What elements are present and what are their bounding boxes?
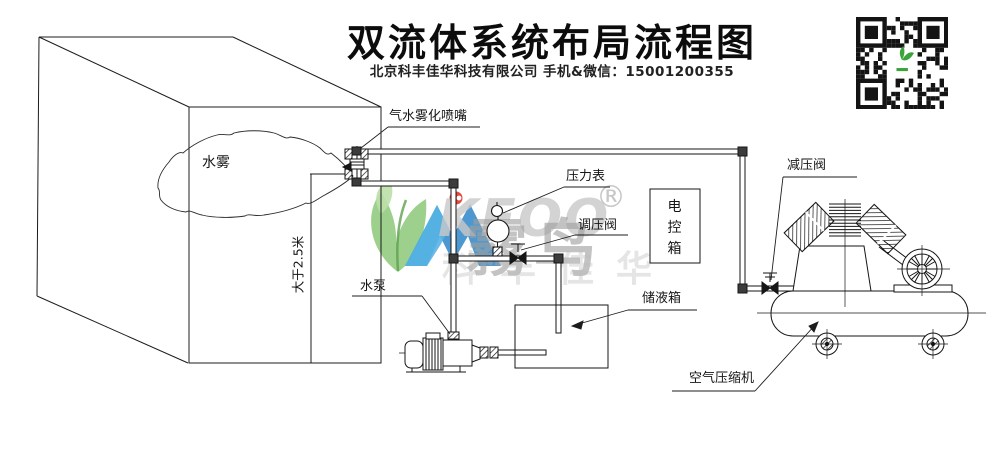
dimension-label: 大于2.5米 — [288, 227, 307, 303]
air-pipe-riser — [740, 149, 745, 290]
atomizing-nozzle — [343, 146, 368, 186]
tank-arrowhead — [572, 321, 583, 329]
pressure-gauge-label: 压力表 — [566, 170, 605, 184]
return-pipe-to-tank — [556, 256, 561, 333]
qr-code — [856, 17, 952, 112]
regulating-valve-leader — [521, 235, 628, 250]
control-box-label: 电控箱 — [666, 197, 683, 260]
room-box — [37, 37, 381, 363]
air-compressor — [757, 199, 986, 359]
water-pipe-to-nozzle — [352, 181, 456, 186]
tank-leader — [575, 310, 697, 325]
bypass-pipe — [451, 256, 561, 261]
flow-diagram-page: KEOO 霧鸟 科丰佳华 ® — [0, 0, 992, 460]
gauge-leader — [503, 187, 610, 213]
storage-tank-label: 储液箱 — [642, 292, 681, 306]
cylinder-left — [784, 202, 834, 251]
water-pump-label: 水泵 — [360, 280, 386, 294]
reducing-valve-label: 减压阀 — [787, 159, 826, 173]
pressure-gauge — [487, 202, 509, 256]
nozzle-label: 气水雾化喷嘴 — [389, 110, 467, 124]
page-subtitle: 北京科丰佳华科技有限公司 手机&微信：15001200355 — [322, 60, 782, 80]
nozzle-leader — [361, 127, 480, 148]
water-pump — [399, 332, 498, 372]
pipe-elbows — [449, 147, 812, 293]
motor-fan — [894, 245, 952, 296]
page-title: 双流体系统布局流程图 — [322, 12, 782, 67]
air-compressor-label: 空气压缩机 — [689, 372, 754, 386]
regulating-valve-label: 调压阀 — [578, 219, 617, 233]
pump-leader — [352, 296, 450, 334]
suction-pipe — [494, 350, 546, 355]
mist-label: 水雾 — [202, 156, 230, 170]
air-pipe-top — [358, 149, 747, 154]
dimension-line — [310, 174, 352, 363]
